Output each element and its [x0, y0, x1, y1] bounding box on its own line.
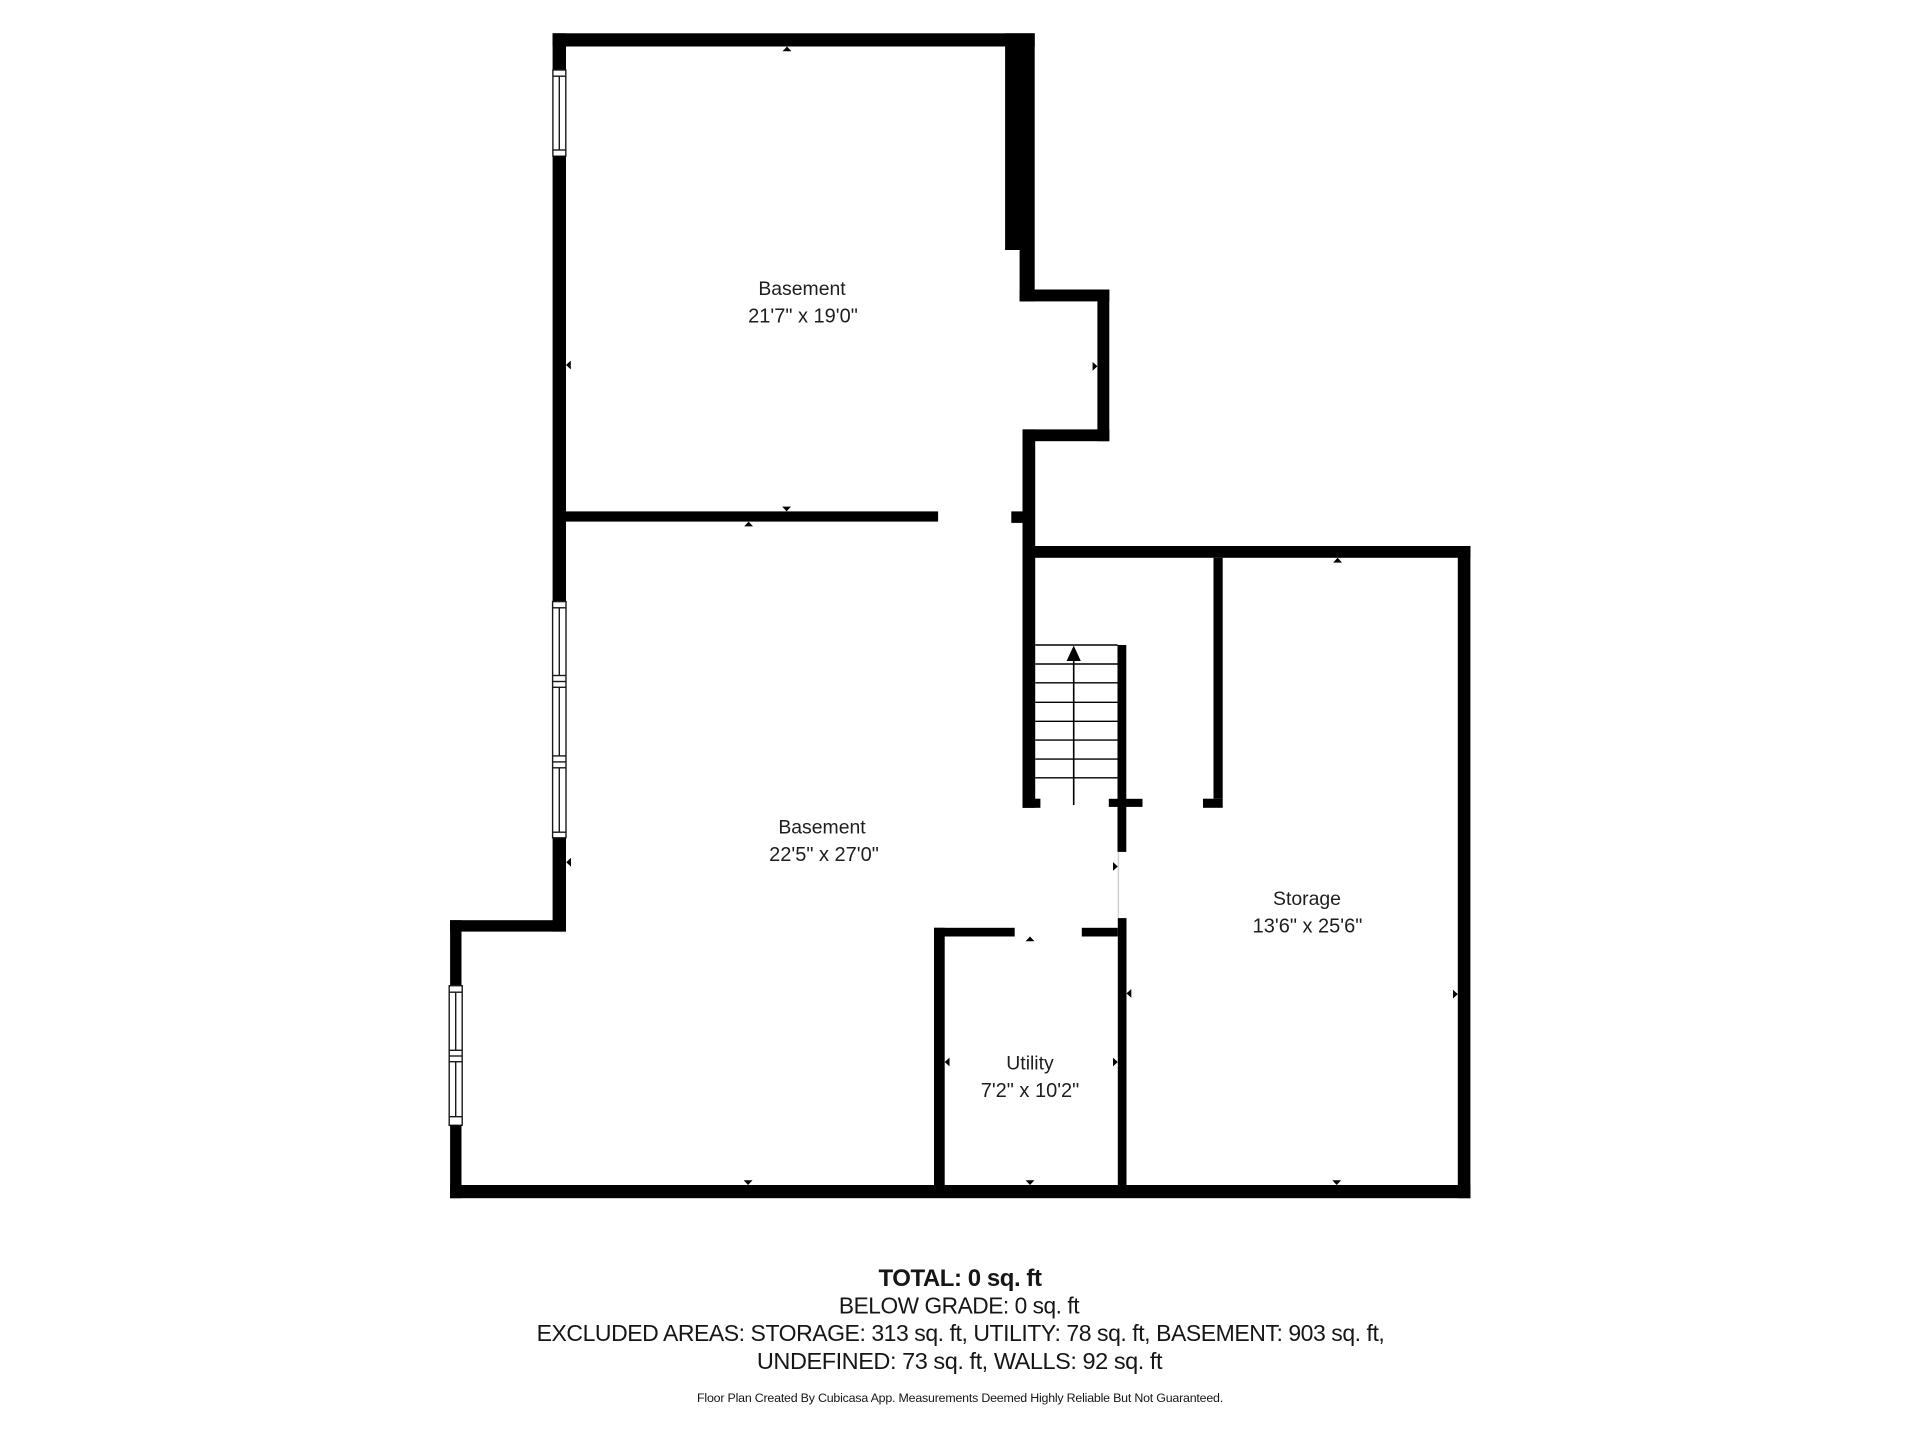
svg-text:Floor Plan Created By Cubicasa: Floor Plan Created By Cubicasa App. Meas… — [697, 1391, 1223, 1405]
svg-text:21'7" x 19'0": 21'7" x 19'0" — [748, 305, 858, 327]
svg-text:22'5" x 27'0": 22'5" x 27'0" — [769, 844, 879, 866]
svg-text:13'6" x 25'6": 13'6" x 25'6" — [1253, 915, 1363, 937]
svg-text:UNDEFINED: 73 sq. ft, WALLS: 9: UNDEFINED: 73 sq. ft, WALLS: 92 sq. ft — [757, 1348, 1163, 1374]
svg-text:EXCLUDED AREAS: STORAGE: 313 s: EXCLUDED AREAS: STORAGE: 313 sq. ft, UTI… — [537, 1320, 1385, 1346]
svg-text:Storage: Storage — [1273, 888, 1341, 910]
svg-text:Basement: Basement — [758, 278, 846, 300]
svg-text:Basement: Basement — [778, 816, 866, 838]
svg-text:TOTAL: 0 sq. ft: TOTAL: 0 sq. ft — [878, 1265, 1041, 1292]
svg-text:BELOW GRADE: 0 sq. ft: BELOW GRADE: 0 sq. ft — [839, 1293, 1080, 1319]
svg-text:Utility: Utility — [1006, 1052, 1054, 1074]
svg-text:7'2" x 10'2": 7'2" x 10'2" — [981, 1080, 1080, 1102]
